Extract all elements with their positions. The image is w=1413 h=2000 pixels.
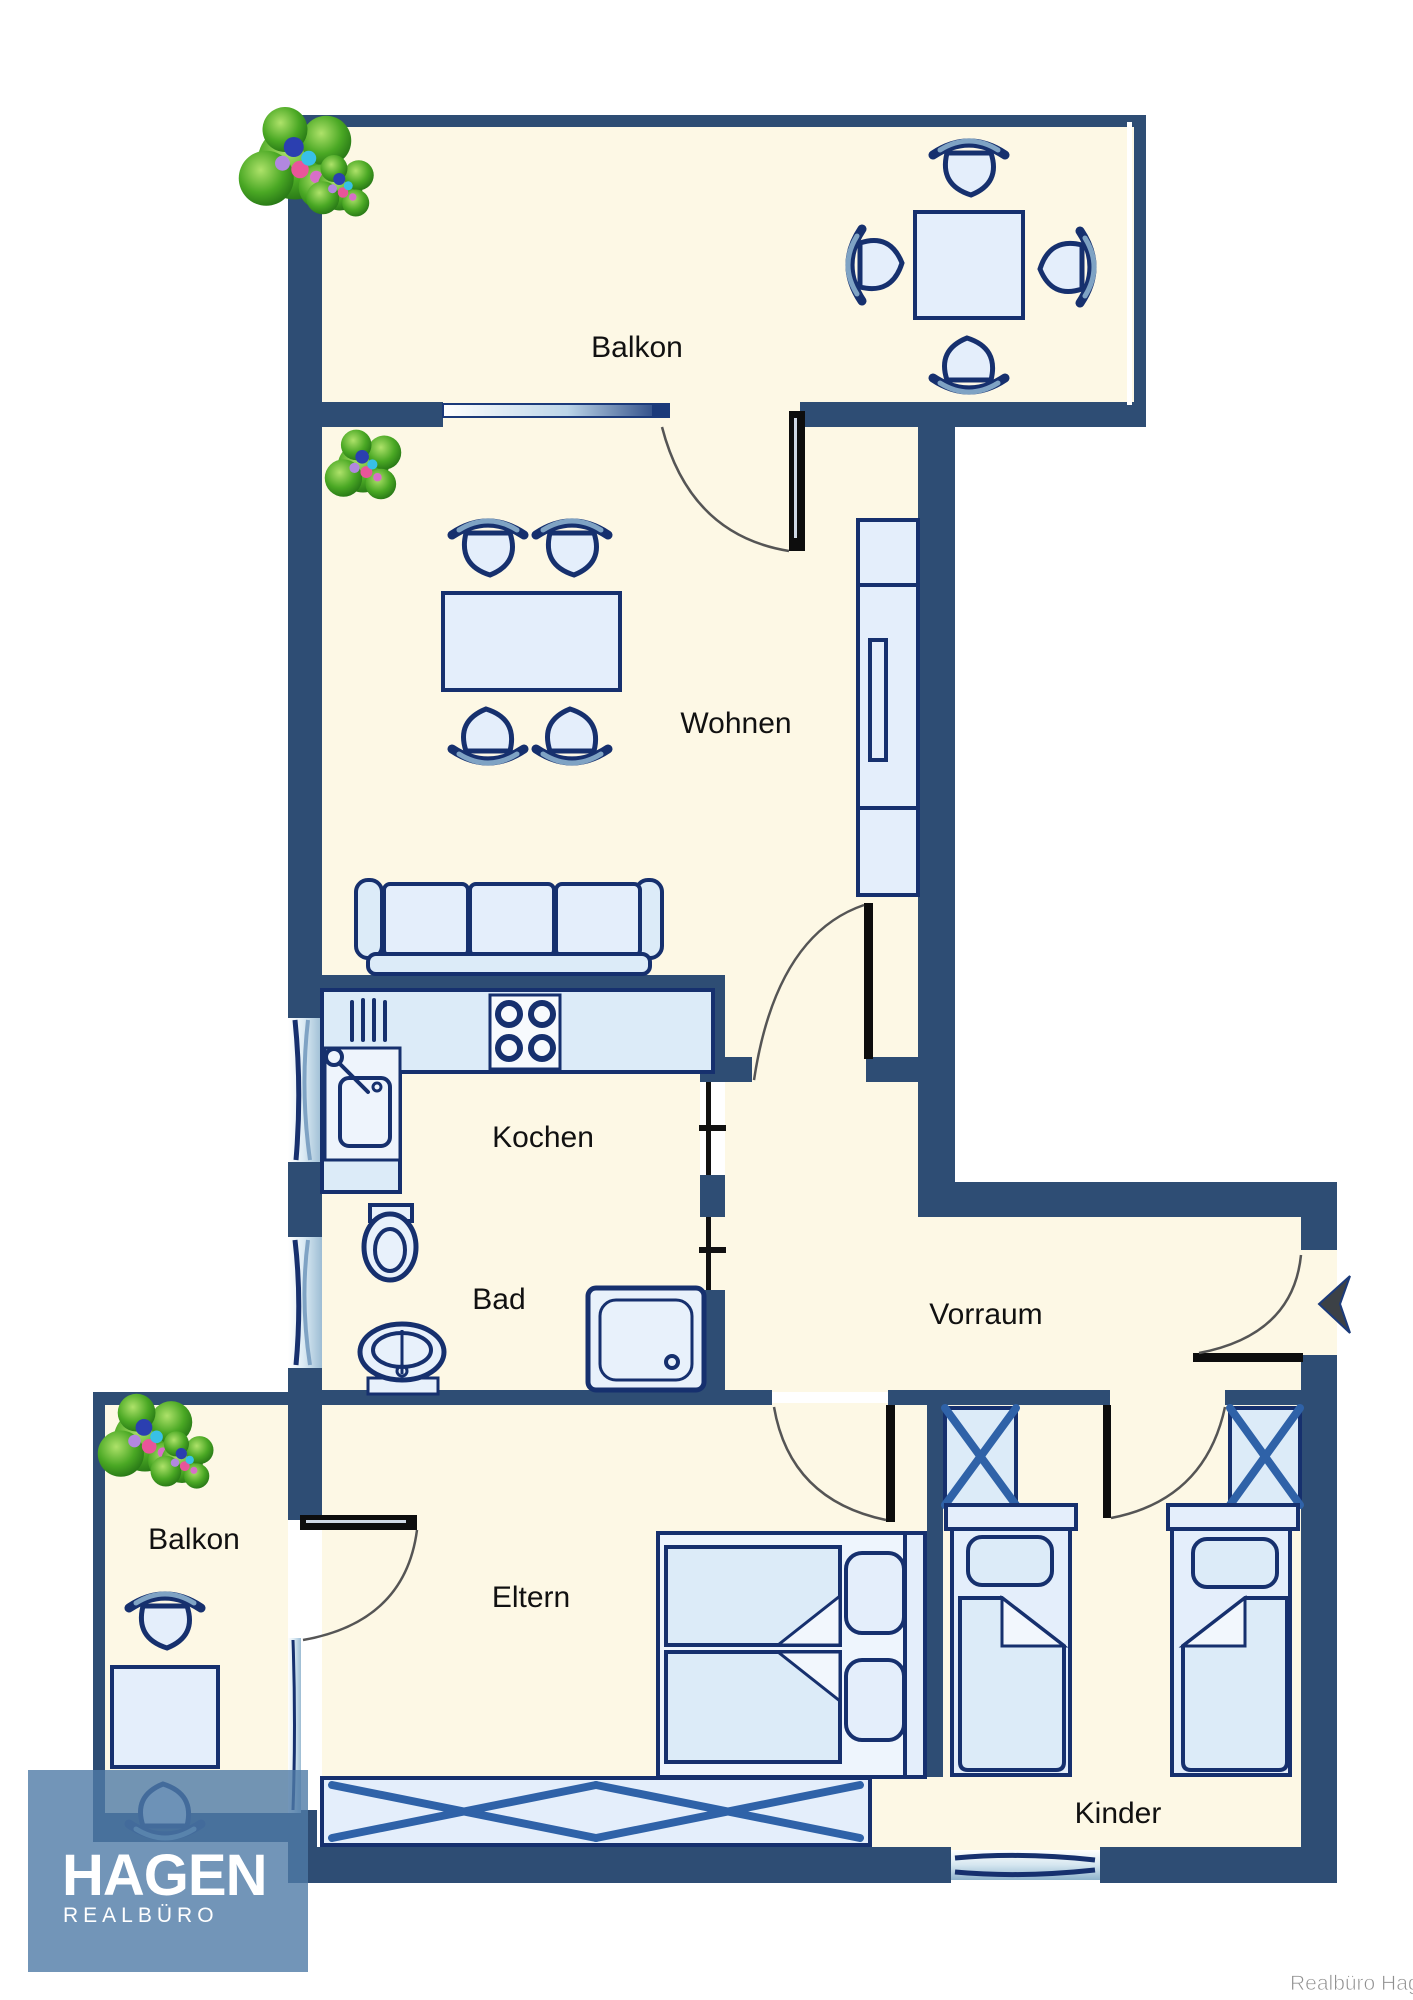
shower-icon — [588, 1288, 704, 1390]
kochen-door-icon — [699, 1082, 726, 1175]
double-bed-icon — [658, 1533, 925, 1777]
wardrobe-icon — [945, 1408, 1016, 1505]
room-label-bad: Bad — [472, 1283, 525, 1316]
wardrobe-icon — [1230, 1408, 1300, 1505]
balcony-slider-icon — [443, 403, 669, 418]
room-label-balkon-top: Balkon — [591, 331, 683, 364]
room-label-kochen: Kochen — [492, 1121, 594, 1154]
room-label-balkon-left: Balkon — [148, 1523, 240, 1556]
kitchen-window-icon — [288, 1018, 322, 1162]
logo-title: HAGEN — [62, 1843, 266, 1908]
toilet-icon — [364, 1205, 416, 1280]
floorplan-canvas: Balkon Wohnen Kochen Bad Vorraum Balkon … — [0, 0, 1413, 2000]
room-label-eltern: Eltern — [492, 1581, 570, 1614]
sofa-icon — [356, 880, 662, 974]
kinder-window-icon — [951, 1850, 1100, 1880]
bath-window-icon — [288, 1237, 322, 1368]
room-label-vorraum: Vorraum — [929, 1298, 1042, 1331]
washbasin-icon — [360, 1324, 444, 1394]
floorplan-page: Balkon Wohnen Kochen Bad Vorraum Balkon … — [0, 0, 1413, 2000]
agency-logo: HAGEN REALBÜRO — [28, 1770, 308, 1972]
dining-table-icon — [443, 593, 620, 690]
logo-subtitle: REALBÜRO — [63, 1904, 219, 1927]
balcony-wall-gap — [1127, 122, 1132, 405]
balcony-table-icon — [112, 1667, 218, 1767]
stove-icon — [490, 995, 560, 1069]
watermark-text: Realbüro Hagen — [1290, 1972, 1413, 1995]
sideboard-icon — [322, 1778, 870, 1845]
single-bed-icon — [946, 1505, 1076, 1775]
cabinet-icon — [858, 520, 918, 895]
room-label-wohnen: Wohnen — [680, 707, 791, 740]
room-label-kinder: Kinder — [1075, 1797, 1162, 1830]
dining-table-icon — [915, 212, 1023, 318]
single-bed-icon — [1168, 1505, 1298, 1775]
